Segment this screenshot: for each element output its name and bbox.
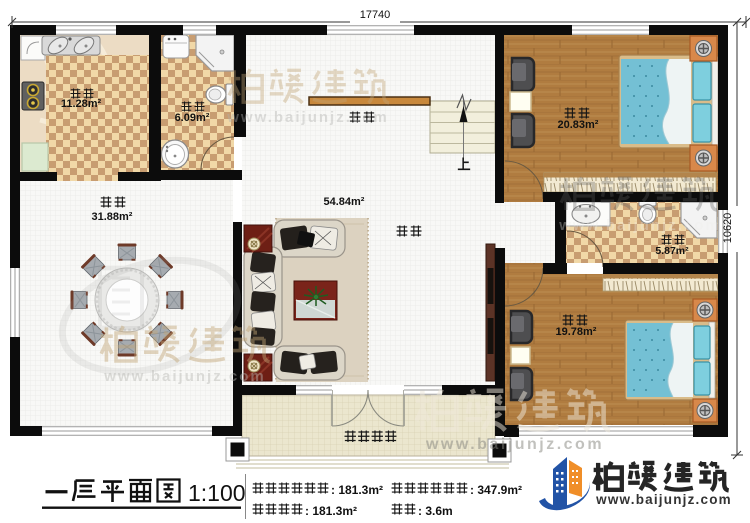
svg-text:1:100: 1:100 (188, 480, 246, 506)
svg-text:www.baijunjz.com: www.baijunjz.com (226, 109, 388, 126)
svg-text:: 347.9m²: : 347.9m² (470, 483, 522, 497)
svg-text:: 181.3m²: : 181.3m² (331, 483, 383, 497)
svg-text:www.baijunjz.com: www.baijunjz.com (425, 436, 604, 453)
svg-text:17740: 17740 (360, 9, 391, 21)
svg-text:www.baijunjz.com: www.baijunjz.com (103, 368, 265, 385)
svg-text:: 3.6m: : 3.6m (418, 504, 453, 518)
svg-text:: 181.3m²: : 181.3m² (305, 504, 357, 518)
svg-text:www.baijunjz.com: www.baijunjz.com (595, 492, 732, 507)
svg-text:10620: 10620 (722, 213, 734, 244)
svg-text:20.83m²: 20.83m² (558, 119, 599, 131)
svg-text:6.09m²: 6.09m² (175, 112, 210, 124)
svg-text:54.84m²: 54.84m² (324, 196, 365, 208)
svg-text:5.87m²: 5.87m² (655, 245, 689, 257)
svg-text:31.88m²: 31.88m² (92, 211, 133, 223)
svg-text:11.28m²: 11.28m² (61, 98, 102, 110)
svg-text:www.baijunjz.com: www.baijunjz.com (558, 217, 720, 234)
svg-text:19.78m²: 19.78m² (556, 326, 597, 338)
